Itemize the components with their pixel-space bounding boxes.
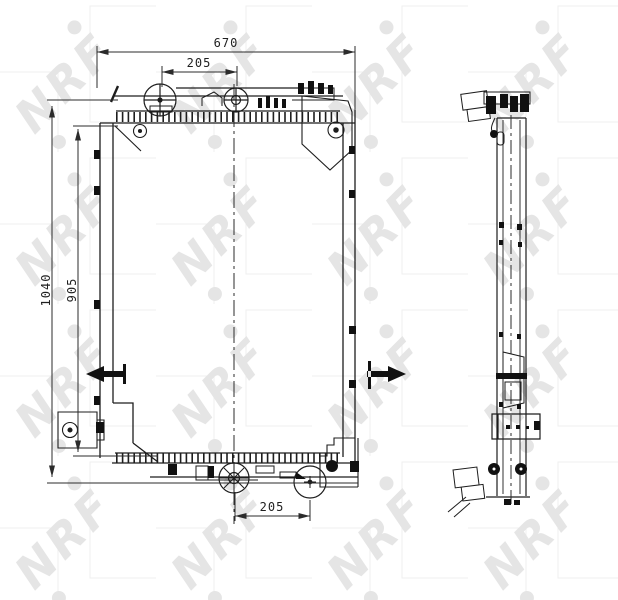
dim-label-overall-height: 1040 [39, 274, 53, 307]
radiator-technical-drawing: NRF [0, 0, 618, 600]
dim-label-overall-width: 670 [214, 36, 239, 50]
top-inlet-port [224, 88, 248, 112]
dim-label-top-port-spacing: 205 [187, 56, 212, 70]
dim-label-core-height: 905 [65, 278, 79, 303]
dim-label-bottom-port-spacing: 205 [260, 500, 285, 514]
drawing-canvas: NRF [0, 0, 618, 600]
bottom-outlet-port [219, 463, 249, 493]
